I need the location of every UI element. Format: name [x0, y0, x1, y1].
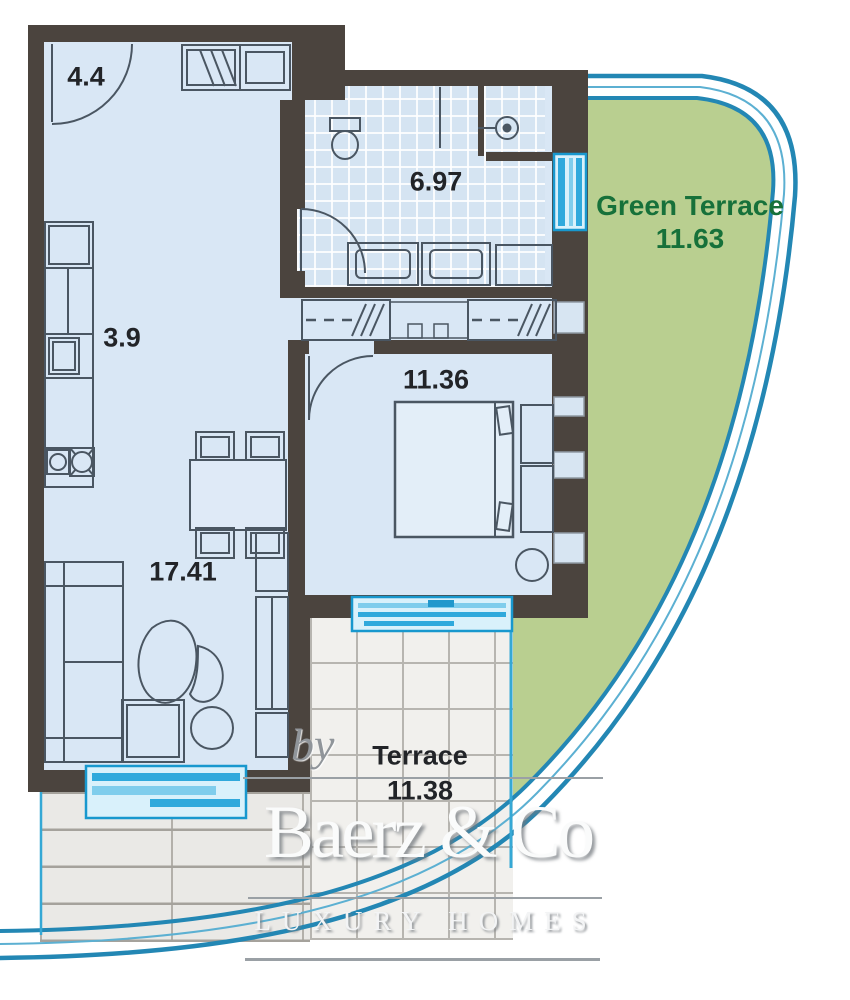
room-label-kitchen: 3.9 — [103, 323, 141, 354]
watermark-rule-bottom — [245, 958, 600, 961]
dining-table-and-chairs — [190, 432, 286, 558]
green-terrace-area: 11.63 — [656, 223, 725, 255]
terrace-area: 11.38 — [387, 776, 453, 807]
bedroom-stool — [516, 549, 548, 581]
vanity-double-sink — [348, 243, 552, 285]
green-terrace-label: Green Terrace — [596, 190, 784, 222]
room-label-hall: 4.4 — [67, 62, 105, 93]
bed — [395, 402, 513, 537]
room-label-bedroom: 11.36 — [403, 365, 469, 396]
living-room-window — [86, 766, 246, 818]
terrace-label: Terrace — [372, 741, 468, 772]
coffee-tables — [138, 621, 233, 749]
bathroom-window — [554, 154, 586, 230]
sofa — [45, 562, 184, 762]
room-label-living: 17.41 — [149, 557, 217, 588]
tv-cabinets — [256, 533, 288, 757]
watermark-by: by — [291, 718, 334, 771]
hall-wardrobe — [182, 45, 290, 90]
bedroom-sliding-door — [352, 597, 512, 631]
nightstands — [521, 405, 553, 532]
corridor-wardrobes — [302, 300, 556, 340]
watermark-rule-middle — [248, 897, 602, 899]
kitchen-unit — [45, 222, 94, 487]
floor-plan-canvas: 4.4 6.97 3.9 11.36 17.41 Green Terrace 1… — [0, 0, 850, 1000]
toilet — [330, 118, 360, 159]
watermark-tagline: LUXURY HOMES — [236, 906, 616, 937]
room-label-bathroom: 6.97 — [410, 167, 463, 198]
door-arcs — [52, 44, 373, 420]
